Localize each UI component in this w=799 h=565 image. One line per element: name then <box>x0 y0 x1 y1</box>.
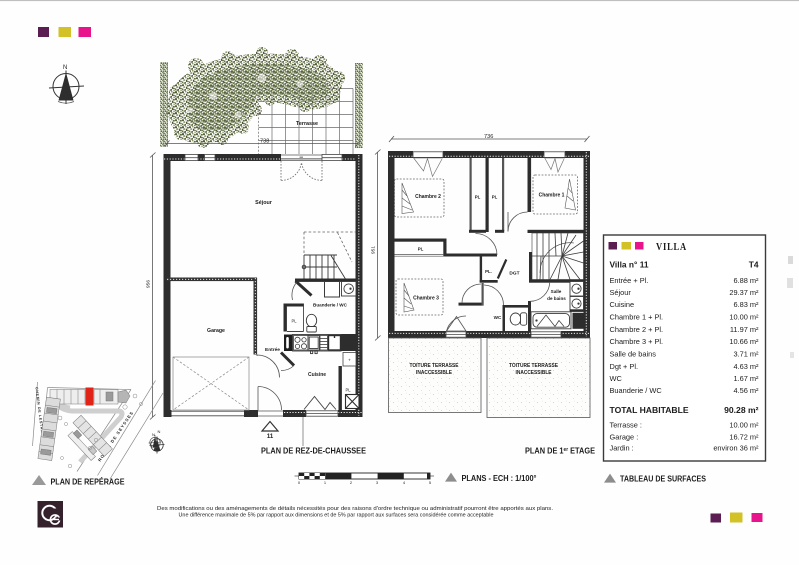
svg-text:10.00 m²: 10.00 m² <box>729 312 759 321</box>
svg-text:TOTAL HABITABLE: TOTAL HABITABLE <box>610 405 689 415</box>
svg-text:PL: PL <box>418 247 424 252</box>
svg-text:PLANS - ECH : 1/100°: PLANS - ECH : 1/100° <box>462 474 537 483</box>
svg-text:738: 738 <box>260 139 269 145</box>
svg-text:6.83 m²: 6.83 m² <box>733 300 759 309</box>
svg-text:951: 951 <box>371 246 377 254</box>
svg-text:INACCESSIBLE: INACCESSIBLE <box>416 370 452 376</box>
svg-text:Buanderie / WC: Buanderie / WC <box>610 386 663 395</box>
svg-text:N: N <box>152 432 155 437</box>
svg-text:736: 736 <box>484 134 493 140</box>
svg-text:Chambre 2: Chambre 2 <box>415 194 441 200</box>
svg-text:1: 1 <box>324 480 327 485</box>
svg-text:TOITURE TERRASSE: TOITURE TERRASSE <box>410 363 459 369</box>
svg-text:Une différence maximale de 5%: Une différence maximale de 5% par rappor… <box>179 513 494 519</box>
svg-text:de bains: de bains <box>547 296 566 301</box>
svg-text:PL: PL <box>492 195 498 200</box>
svg-text:956: 956 <box>146 280 152 288</box>
svg-text:DGT: DGT <box>509 271 519 277</box>
svg-text:11.97 m²: 11.97 m² <box>730 325 759 334</box>
svg-text:T4: T4 <box>749 260 759 270</box>
svg-text:PLAN DE REZ-DE-CHAUSSEE: PLAN DE REZ-DE-CHAUSSEE <box>261 446 366 456</box>
svg-text:Terrasse: Terrasse <box>296 121 318 127</box>
svg-text:Cuisine: Cuisine <box>610 300 635 309</box>
svg-text:Entrée: Entrée <box>265 347 280 353</box>
svg-text:TABLEAU DE SURFACES: TABLEAU DE SURFACES <box>620 475 707 484</box>
svg-text:4.63 m²: 4.63 m² <box>733 362 759 371</box>
svg-text:3.71 m²: 3.71 m² <box>733 349 759 358</box>
svg-text:Villa n° 11: Villa n° 11 <box>610 260 649 270</box>
svg-text:Chambre 1: Chambre 1 <box>539 193 565 199</box>
svg-text:PL: PL <box>475 195 481 200</box>
svg-text:10.00 m²: 10.00 m² <box>729 421 759 430</box>
svg-text:Entrée + Pl.: Entrée + Pl. <box>610 276 649 285</box>
svg-text:Jardin :: Jardin : <box>610 444 634 453</box>
svg-text:0: 0 <box>298 480 301 485</box>
svg-text:Salle de bains: Salle de bains <box>610 349 657 358</box>
svg-text:PL: PL <box>291 319 297 324</box>
svg-text:29.37 m²: 29.37 m² <box>729 288 759 297</box>
svg-text:Terrasse :: Terrasse : <box>610 421 642 430</box>
svg-text:Garage :: Garage : <box>610 433 639 442</box>
svg-text:3: 3 <box>376 480 379 485</box>
svg-text:Chambre 3 + Pl.: Chambre 3 + Pl. <box>610 337 664 346</box>
svg-text:Séjour: Séjour <box>255 200 273 206</box>
svg-text:INACCESSIBLE: INACCESSIBLE <box>516 370 552 376</box>
svg-text:Salle: Salle <box>551 289 562 294</box>
svg-text:PL: PL <box>345 388 351 393</box>
svg-text:Des modifications ou des aména: Des modifications ou des aménagements de… <box>157 506 553 512</box>
svg-text:2: 2 <box>350 480 353 485</box>
svg-text:16.72 m²: 16.72 m² <box>729 433 759 442</box>
svg-text:Dgt + Pl.: Dgt + Pl. <box>610 362 639 371</box>
svg-text:11: 11 <box>267 434 274 440</box>
svg-text:VILLA: VILLA <box>656 242 687 253</box>
svg-text:Garage: Garage <box>207 328 225 334</box>
svg-text:Chambre 1 + Pl.: Chambre 1 + Pl. <box>610 312 664 321</box>
svg-text:N: N <box>158 429 161 434</box>
svg-text:TOITURE TERRASSE: TOITURE TERRASSE <box>509 363 558 369</box>
svg-text:WC: WC <box>610 374 623 383</box>
svg-text:Chambre 3: Chambre 3 <box>413 296 439 302</box>
svg-text:+: + <box>348 358 351 363</box>
svg-text:PL.: PL. <box>485 269 492 274</box>
svg-text:1.67 m²: 1.67 m² <box>733 374 759 383</box>
svg-text:5: 5 <box>429 480 432 485</box>
svg-text:PLAN DE 1er ETAGE: PLAN DE 1er ETAGE <box>525 446 595 456</box>
svg-text:90.28 m²: 90.28 m² <box>724 405 759 415</box>
svg-text:N: N <box>63 65 67 71</box>
svg-text:Chambre 2 + Pl.: Chambre 2 + Pl. <box>610 325 664 334</box>
svg-text:environ 36 m²: environ 36 m² <box>713 444 759 453</box>
svg-text:6.88 m²: 6.88 m² <box>733 276 759 285</box>
svg-text:Buanderie / WC: Buanderie / WC <box>313 303 348 308</box>
svg-text:10.66 m²: 10.66 m² <box>729 337 759 346</box>
svg-text:PLAN DE REPÉRAGE: PLAN DE REPÉRAGE <box>51 476 125 486</box>
svg-text:Séjour: Séjour <box>610 288 632 297</box>
svg-text:4: 4 <box>403 480 406 485</box>
svg-text:WC: WC <box>494 315 502 320</box>
svg-text:4.56 m²: 4.56 m² <box>733 386 759 395</box>
svg-text:Cuisine: Cuisine <box>308 372 326 378</box>
